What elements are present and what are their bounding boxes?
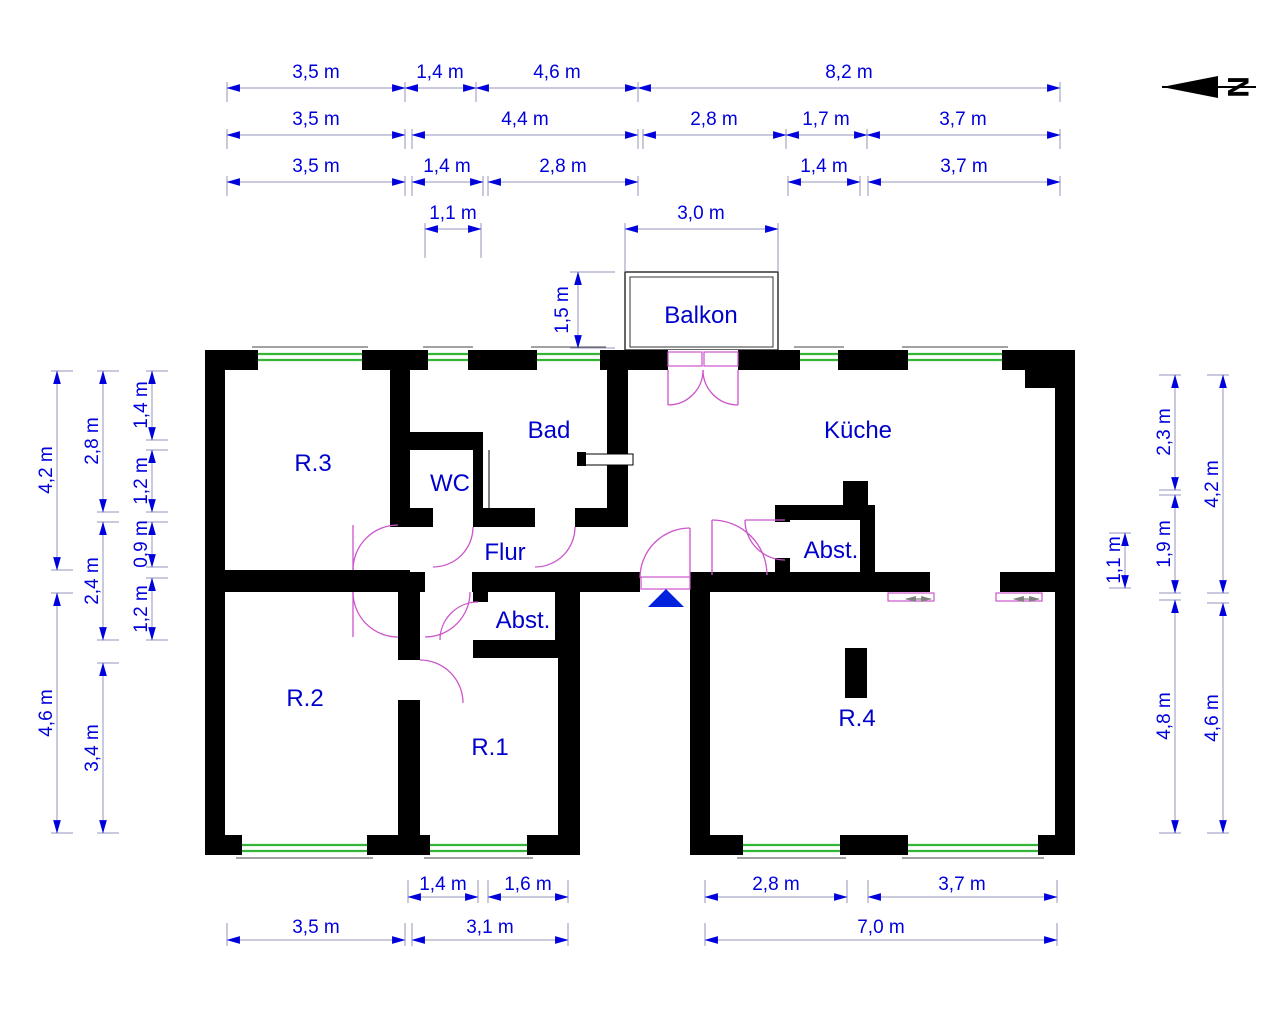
dim-label: 2,8 m — [82, 417, 103, 465]
dimension-lines — [57, 88, 1223, 940]
dim-label: 3,7 m — [940, 156, 988, 177]
door-flur-vestibule — [425, 592, 470, 637]
dim-label: 3,1 m — [466, 917, 514, 938]
window — [236, 835, 373, 858]
sliding-door — [888, 593, 934, 601]
room-label-abst-right: Abst. — [804, 537, 859, 564]
dim-label: 3,4 m — [82, 724, 103, 772]
dim-label: 1,4 m — [416, 62, 464, 83]
north-arrow-icon: N — [1162, 76, 1256, 98]
window — [902, 347, 1008, 370]
dim-label: 1,9 m — [1154, 520, 1175, 568]
dim-label: 1,4 m — [800, 156, 848, 177]
entrance-arrow-icon — [648, 589, 684, 607]
door-r3 — [353, 525, 398, 570]
dim-label: 4,6 m — [533, 62, 581, 83]
window — [794, 347, 844, 370]
window — [902, 835, 1044, 858]
door-wc — [433, 527, 473, 567]
room-label-wc: WC — [430, 470, 470, 497]
room-labels: Balkon Bad WC Küche Flur Abst. Abst. R.3… — [286, 302, 892, 761]
room-label-r1: R.1 — [471, 734, 508, 761]
dim-label: 4,2 m — [1202, 460, 1223, 508]
room-label-kueche: Küche — [824, 417, 892, 444]
room-label-flur: Flur — [484, 539, 525, 566]
dim-label: 3,7 m — [939, 109, 987, 130]
dim-label: 1,4 m — [423, 156, 471, 177]
dim-label: 3,5 m — [292, 917, 340, 938]
room-label-r2: R.2 — [286, 685, 323, 712]
window — [424, 835, 533, 858]
dim-label: 3,5 m — [292, 156, 340, 177]
dim-label: 2,8 m — [539, 156, 587, 177]
dim-label: 1,6 m — [504, 874, 552, 895]
dim-label: 2,8 m — [690, 109, 738, 130]
room-label-bad: Bad — [528, 417, 571, 444]
window — [252, 347, 368, 370]
dim-label: 2,8 m — [752, 874, 800, 895]
dim-label: 1,7 m — [802, 109, 850, 130]
sliding-door — [996, 593, 1042, 601]
walls — [205, 350, 1075, 855]
dim-label: 3,5 m — [292, 109, 340, 130]
dim-label: 1,1 m — [429, 203, 477, 224]
floorplan-drawing: 3,5 m 1,4 m 4,6 m 8,2 m 3,5 m 4,4 m 2,8 … — [0, 0, 1280, 1024]
dim-label: 4,6 m — [1202, 694, 1223, 742]
dim-label: 4,2 m — [36, 446, 57, 494]
door-kueche — [712, 520, 767, 575]
room-label-r3: R.3 — [294, 450, 331, 477]
window — [531, 347, 606, 370]
dim-label: 0,9 m — [131, 520, 152, 568]
dim-label: 1,2 m — [131, 457, 152, 505]
windows — [236, 347, 1044, 858]
north-label: N — [1221, 76, 1254, 98]
dim-label: 4,4 m — [501, 109, 549, 130]
dim-label: 1,1 m — [1104, 536, 1125, 584]
dim-label: 1,2 m — [131, 585, 152, 633]
dim-label: 4,8 m — [1154, 692, 1175, 740]
floorplan-page: 3,5 m 1,4 m 4,6 m 8,2 m 3,5 m 4,4 m 2,8 … — [0, 0, 1280, 1024]
door-abst-right — [745, 520, 785, 560]
window — [423, 347, 473, 370]
door-r2 — [353, 592, 398, 637]
dim-label: 2,3 m — [1154, 408, 1175, 456]
window — [737, 835, 846, 858]
room-label-abst-left: Abst. — [496, 607, 551, 634]
dim-label: 2,4 m — [82, 557, 103, 605]
room-label-r4: R.4 — [838, 705, 875, 732]
dim-label: 1,4 m — [131, 381, 152, 429]
dim-label: 4,6 m — [36, 689, 57, 737]
dim-label: 1,4 m — [419, 874, 467, 895]
dim-label: 1,5 m — [552, 286, 573, 334]
dim-label: 3,5 m — [292, 62, 340, 83]
dim-label: 7,0 m — [857, 917, 905, 938]
room-label-balkon: Balkon — [664, 302, 737, 329]
door-bad — [535, 527, 575, 567]
dimension-extension-lines — [51, 82, 1229, 946]
dim-label: 3,0 m — [677, 203, 725, 224]
door-entrance — [640, 528, 690, 589]
dim-label: 8,2 m — [825, 62, 873, 83]
bad-radiator — [577, 452, 633, 466]
dim-label: 3,7 m — [938, 874, 986, 895]
door-r1 — [420, 660, 463, 703]
